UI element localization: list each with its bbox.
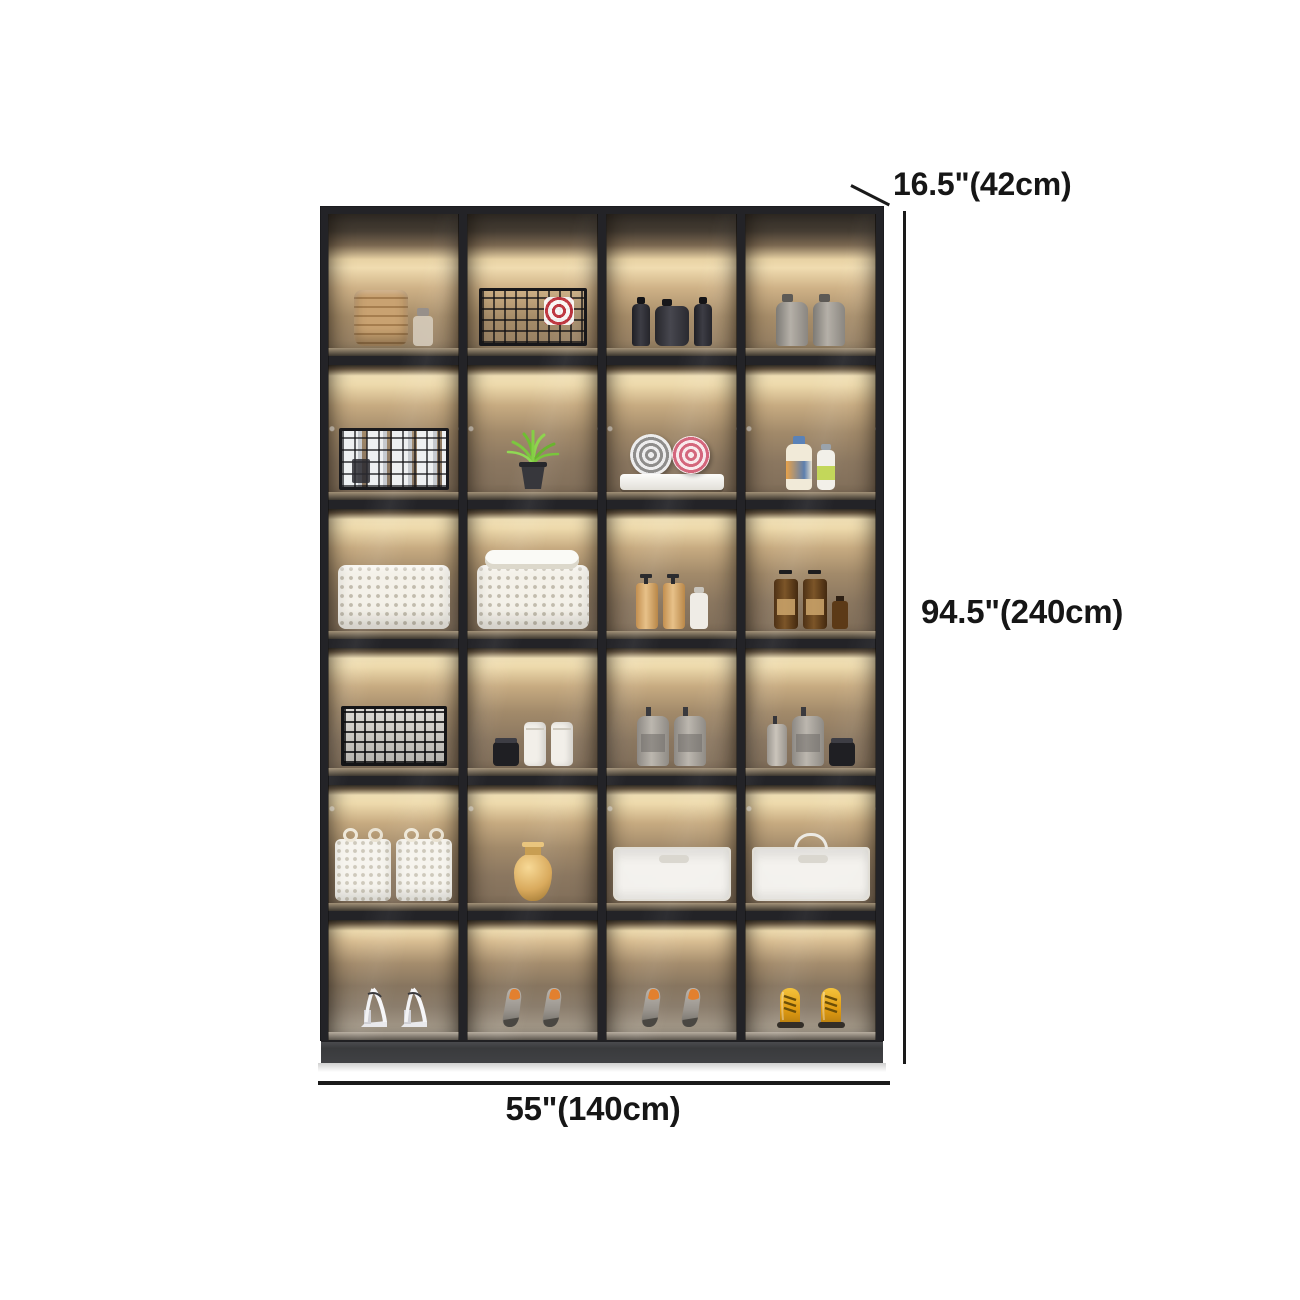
item-jug-grey	[813, 302, 845, 346]
item-towel-rolls	[620, 432, 724, 490]
item-pump-amber	[663, 583, 685, 629]
shelf-cell-r1c4	[745, 214, 876, 356]
shelf-cell-r5c4	[745, 785, 876, 911]
shelf-cell-r4c2	[467, 648, 598, 776]
item-pumps-grey	[494, 986, 572, 1030]
item-wire-basket-cloth	[479, 288, 587, 346]
shelf-cell-r6c1	[328, 920, 459, 1040]
shelf-cell-r3c1	[328, 509, 459, 640]
shelf-cell-r2c4	[745, 365, 876, 500]
shelf-cell-r3c4	[745, 509, 876, 640]
depth-dimension-label: 16.5"(42cm)	[893, 166, 1071, 203]
shelf-cell-r6c4	[745, 920, 876, 1040]
shelf-cell-r5c2	[467, 785, 598, 911]
item-basket-white	[338, 565, 450, 629]
item-jar-black	[493, 742, 519, 766]
item-bottle-dark	[632, 304, 650, 346]
height-dimension-line	[903, 211, 906, 1064]
floor-shadow	[318, 1063, 886, 1072]
item-glass-jar	[413, 316, 433, 346]
item-boots-yellow	[774, 984, 848, 1030]
item-shampoo-orange	[786, 444, 812, 490]
cabinet-base-plinth	[321, 1040, 883, 1063]
item-laundry-grey	[637, 716, 669, 766]
folded-towel	[620, 474, 724, 490]
item-woven-bag	[335, 839, 391, 901]
item-pump-brown	[803, 579, 827, 629]
shelf-cell-r1c1	[328, 214, 459, 356]
shelf-cell-r1c2	[467, 214, 598, 356]
item-pumps-grey	[633, 986, 711, 1030]
item-bottle-dark	[694, 304, 712, 346]
item-wire-basket-bottles	[339, 428, 449, 490]
depth-dimension-line	[850, 184, 890, 206]
shelf-cell-r4c1	[328, 648, 459, 776]
item-canister-white	[551, 722, 573, 766]
item-basket-white-towels	[477, 565, 589, 629]
shelf-cell-r6c3	[606, 920, 737, 1040]
shelf-cell-r6c2	[467, 920, 598, 1040]
cabinet-grid	[328, 214, 876, 1040]
shelf-cell-r2c1	[328, 365, 459, 500]
shelf-cell-r1c3	[606, 214, 737, 356]
item-jug-grey	[776, 302, 808, 346]
width-dimension-line	[318, 1081, 890, 1085]
display-cabinet	[321, 207, 883, 1040]
product-dimension-image: 16.5"(42cm) 94.5"(240cm) 55"(140cm)	[0, 0, 1300, 1300]
shelf-cell-r5c3	[606, 785, 737, 911]
item-jug-dark	[655, 306, 689, 346]
shelf-cell-r3c3	[606, 509, 737, 640]
item-pump-brown	[774, 579, 798, 629]
shelf-cell-r4c3	[606, 648, 737, 776]
item-vase-gold	[514, 853, 552, 901]
shelf-cell-r4c4	[745, 648, 876, 776]
item-pump-amber	[636, 583, 658, 629]
height-dimension-label: 94.5"(240cm)	[921, 593, 1123, 631]
item-laundry-grey	[674, 716, 706, 766]
shelf-cell-r3c2	[467, 509, 598, 640]
item-jar-black	[829, 742, 855, 766]
item-shampoo-green	[817, 450, 835, 490]
item-bottle-white-sm	[690, 593, 708, 629]
shelf-cell-r2c2	[467, 365, 598, 500]
item-bin-white-lid	[752, 847, 870, 901]
item-canister-white	[524, 722, 546, 766]
item-plant	[504, 430, 562, 490]
item-basket-tan	[354, 290, 408, 346]
shelf-cell-r2c3	[606, 365, 737, 500]
item-grid-basket	[341, 706, 447, 766]
item-woven-bag	[396, 839, 452, 901]
item-heels-white	[355, 984, 433, 1030]
width-dimension-label: 55"(140cm)	[423, 1090, 763, 1128]
item-bin-white	[613, 847, 731, 901]
item-pump-grey-sm	[767, 724, 787, 766]
item-bottle-brown-sm	[832, 601, 848, 629]
item-laundry-grey	[792, 716, 824, 766]
shelf-cell-r5c1	[328, 785, 459, 911]
